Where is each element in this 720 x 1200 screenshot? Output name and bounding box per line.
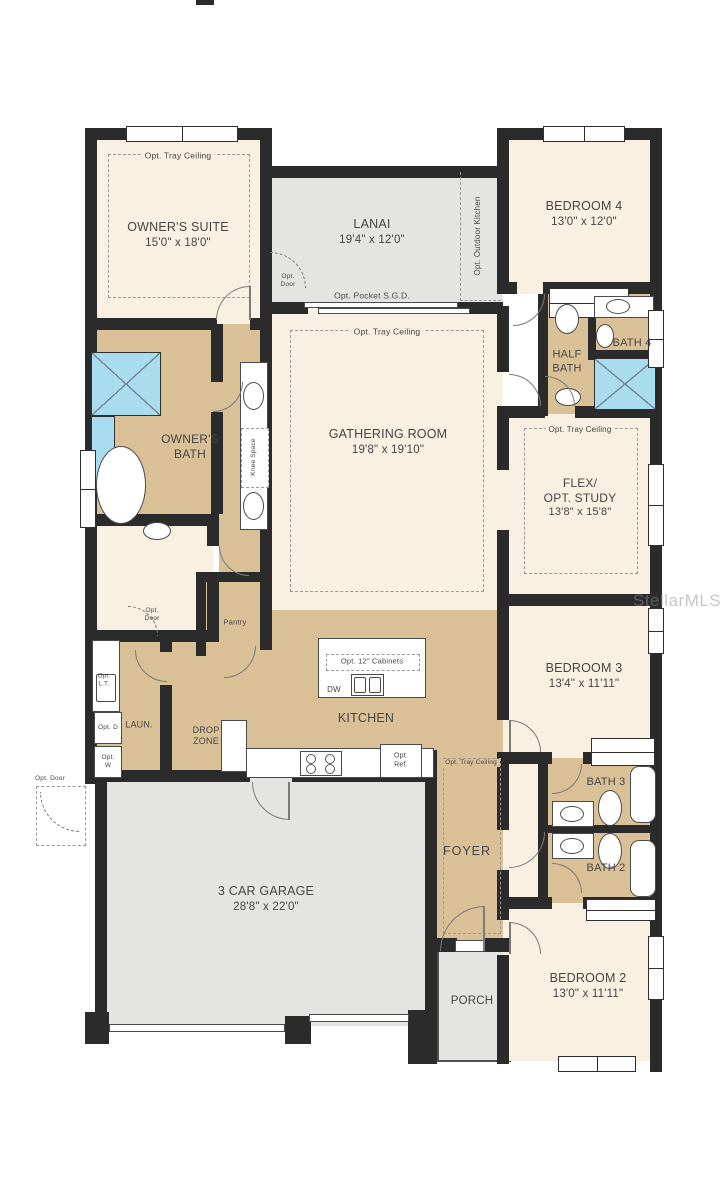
window [543, 126, 625, 142]
opt-cabinets-label: Opt. 12" Cabinets [341, 656, 403, 665]
bath3-label: BATH 3 [587, 776, 626, 790]
sink [243, 382, 264, 410]
bedroom3-dims: 13'4" x 11'11" [546, 677, 623, 691]
opt-d-label: Opt. D [98, 724, 118, 732]
door-leaf [483, 906, 485, 951]
half-bath-label: HALF BATH [543, 348, 591, 376]
garage-dims: 28'8" x 22'0" [218, 900, 314, 914]
garage-door [109, 1024, 285, 1032]
window [126, 126, 238, 142]
sink [560, 806, 584, 822]
lanai-name: LANAI [339, 217, 405, 233]
bathtub [630, 766, 656, 823]
burner-icon [325, 754, 335, 764]
flex-name1: FLEX/ [544, 476, 617, 491]
drop-zone-label: DROP ZONE [185, 725, 227, 748]
window [648, 936, 664, 1000]
toilet [598, 790, 622, 826]
opt-door-label-wic: Opt. Door [139, 607, 165, 623]
bedroom4-dims: 13'0" x 12'0" [546, 215, 623, 229]
window [80, 450, 96, 528]
owners-bath-label: OWNER'S BATH [150, 432, 230, 462]
top-mark [196, 0, 214, 5]
opt-door-label-exterior: Opt. Door [35, 775, 65, 783]
owners-suite-name: OWNER'S SUITE [127, 220, 229, 236]
burner-icon [306, 764, 316, 774]
wall [211, 412, 223, 514]
flex-label: FLEX/ OPT. STUDY 13'8" x 15'8" [544, 476, 617, 520]
owners-suite-dims: 15'0" x 18'0" [127, 236, 229, 250]
lanai-label: LANAI 19'4" x 12'0" [339, 217, 405, 247]
wall [497, 406, 509, 470]
flex-dims: 13'8" x 15'8" [544, 506, 617, 520]
wall [260, 302, 308, 314]
door-arc [509, 374, 541, 406]
wall [160, 685, 172, 776]
bedroom2-dims: 13'0" x 11'11" [550, 987, 627, 1001]
knee-space-label: Knee Space [250, 438, 258, 475]
wall [497, 955, 509, 1064]
door-leaf [509, 922, 511, 954]
wall [485, 938, 509, 952]
lanai-dims: 19'4" x 12'0" [339, 233, 405, 247]
closet-bedroom3 [591, 738, 655, 766]
wall [196, 572, 206, 656]
wall [85, 318, 217, 330]
bedroom2-name: BEDROOM 2 [550, 971, 627, 987]
bedroom3-name: BEDROOM 3 [546, 661, 623, 677]
opt-w-label: Opt. W [98, 754, 118, 770]
pocket-sliding-door [318, 308, 470, 314]
wall [497, 606, 509, 720]
gathering-label: GATHERING ROOM 19'8" x 19'10" [329, 427, 448, 457]
wall [425, 750, 437, 1032]
bathtub [630, 840, 656, 897]
window [648, 608, 664, 654]
garage-name: 3 CAR GARAGE [218, 884, 314, 900]
tray-box-gathering [290, 330, 484, 592]
tray-label-owners-suite: Opt. Tray Ceiling [142, 151, 215, 162]
bath2-label: BATH 2 [587, 862, 626, 876]
sink [555, 304, 579, 334]
sink [560, 838, 584, 854]
sink-basin [369, 677, 381, 693]
sink-basin [354, 677, 366, 693]
door-leaf [509, 720, 511, 752]
gathering-name: GATHERING ROOM [329, 427, 448, 443]
window [648, 464, 664, 546]
bedroom3-label: BEDROOM 3 13'4" x 11'11" [546, 661, 623, 691]
wall [250, 318, 272, 330]
shower [594, 358, 656, 410]
owners-suite-label: OWNER'S SUITE 15'0" x 18'0" [127, 220, 229, 250]
sink [243, 492, 264, 520]
kitchen-label: KITCHEN [338, 711, 394, 727]
wall [211, 324, 223, 382]
gathering-dims: 19'8" x 19'10" [329, 443, 448, 457]
opt-ref-label: Opt. Ref. [387, 752, 415, 770]
sink [606, 299, 630, 314]
bath4-label: BATH 4 [612, 337, 652, 351]
garage-label: 3 CAR GARAGE 28'8" x 22'0" [218, 884, 314, 914]
tray-label-gathering: Opt. Tray Ceiling [351, 327, 424, 338]
laundry-label: LAUN. [125, 719, 153, 730]
bedroom4-name: BEDROOM 4 [546, 199, 623, 215]
wall [408, 1010, 437, 1064]
range [300, 751, 342, 776]
tray-label-flex: Opt. Tray Ceiling [546, 425, 615, 435]
wall [85, 1012, 109, 1044]
opt-pocket-sgd-label: Opt. Pocket S.G.D. [332, 291, 412, 302]
flex-name2: OPT. STUDY [544, 491, 617, 506]
bedroom4-label: BEDROOM 4 13'0" x 12'0" [546, 199, 623, 229]
opt-outdoor-kitchen-label: Opt. Outdoor Kitchen [473, 196, 483, 275]
bedroom2-label: BEDROOM 2 13'0" x 11'11" [550, 971, 627, 1001]
toilet [143, 522, 171, 540]
garage-door [309, 1014, 409, 1022]
wall [497, 306, 509, 372]
window [558, 1056, 636, 1072]
pantry-label: Pantry [224, 617, 247, 626]
dw-label: DW [327, 685, 341, 695]
floor-plan: OWNER'S SUITE 15'0" x 18'0" Opt. Tray Ce… [0, 0, 720, 1200]
bathtub [96, 446, 146, 524]
door-leaf [249, 286, 251, 320]
burner-icon [325, 764, 335, 774]
tray-label-foyer: Opt. Tray Ceiling [442, 759, 500, 767]
porch-label: PORCH [451, 994, 494, 1008]
door-leaf [288, 782, 290, 820]
opt-lt-label: Opt. L.T. [93, 674, 115, 689]
burner-icon [306, 754, 316, 764]
wall [95, 776, 107, 1028]
closet-bedroom2 [586, 899, 656, 921]
opt-door-label-lanai: Opt. Door [275, 273, 301, 289]
foyer-label: FOYER [443, 844, 491, 860]
wall [497, 897, 552, 909]
shower [91, 352, 161, 416]
wall [285, 1016, 311, 1044]
watermark: StellarMLS [633, 591, 720, 611]
